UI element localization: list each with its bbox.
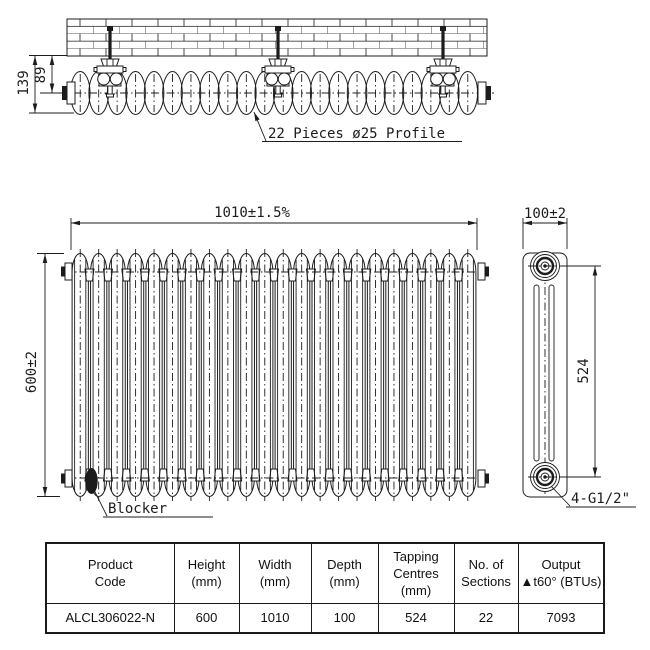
section-joint-bottom [270, 469, 279, 481]
section-joint-top [196, 269, 205, 281]
radiator-spec-sheet: 139 89 22 Pieces ø25 Profile 1010±1.5% 6… [0, 0, 650, 650]
connection-plug [61, 474, 65, 484]
section-joint-top [270, 269, 279, 281]
section-joint-bottom [140, 469, 149, 481]
bracket-foot-pad [275, 94, 282, 97]
section-joint-bottom [380, 469, 389, 481]
section-joint-bottom [122, 469, 131, 481]
section-joint-bottom [214, 469, 223, 481]
dimension-arrow [50, 56, 55, 65]
bracket-bar-tab [291, 68, 294, 72]
table-header-cell: Width(mm) [239, 543, 311, 603]
connection-plug [485, 267, 489, 277]
bracket-bar-tab [456, 68, 459, 72]
section-joint-top [306, 269, 315, 281]
specification-table: ProductCodeHeight(mm)Width(mm)Depth(mm)T… [45, 542, 605, 634]
bracket-foot-pad [440, 94, 447, 97]
table-header-cell: Depth(mm) [311, 543, 378, 603]
dim-height-label: 600±2 [24, 351, 40, 393]
bracket-pin-head [440, 26, 446, 31]
connection-plug [485, 474, 489, 484]
bracket-bar [265, 66, 291, 73]
dimension-arrow [468, 221, 477, 226]
dim-depth-label: 100±2 [524, 206, 566, 222]
dimension-arrow [71, 221, 80, 226]
table-row: ALCL306022-N6001010100524227093 [46, 603, 604, 633]
section-joint-bottom [196, 469, 205, 481]
section-joint-bottom [436, 469, 445, 481]
dim-139-label: 139 [16, 70, 32, 95]
bracket-bar-tab [262, 68, 265, 72]
section-joint-bottom [454, 469, 463, 481]
table-cell: 600 [174, 603, 239, 633]
dimension-arrow [593, 468, 598, 477]
section-joint-top [399, 269, 408, 281]
section-joint-bottom [159, 469, 168, 481]
end-cap [478, 82, 486, 104]
section-joint-bottom [343, 469, 352, 481]
end-cap-plug [62, 86, 67, 100]
blocker-plug [85, 468, 97, 494]
section-joint-bottom [233, 469, 242, 481]
table-header-cell: No. ofSections [454, 543, 518, 603]
section-joint-bottom [251, 469, 260, 481]
dimension-arrow [43, 254, 48, 263]
table-header-cell: ProductCode [46, 543, 174, 603]
dimension-arrow [43, 487, 48, 496]
section-joint-bottom [177, 469, 186, 481]
section-joint-top [417, 269, 426, 281]
section-joint-bottom [362, 469, 371, 481]
bracket-plate [434, 59, 452, 66]
section-joint-top [159, 269, 168, 281]
section-joint-bottom [399, 469, 408, 481]
bracket-roller [278, 73, 290, 85]
dimension-arrow [50, 84, 55, 93]
section-joint-bottom [288, 469, 297, 481]
bracket-bar-tab [427, 68, 430, 72]
bracket-bar [97, 66, 123, 73]
bracket-bar-tab [123, 68, 126, 72]
section-joint-top [103, 269, 112, 281]
dim-89-label: 89 [33, 67, 49, 84]
bracket-roller [431, 73, 443, 85]
dimension-arrow [593, 267, 598, 276]
blocker-label: Blocker [108, 501, 167, 517]
section-joint-bottom [103, 469, 112, 481]
connection-cap [478, 470, 485, 487]
table-header-cell: Height(mm) [174, 543, 239, 603]
end-cap [67, 82, 75, 104]
dim-tapping-label: 524 [576, 358, 592, 383]
section-joint-top [288, 269, 297, 281]
end-cap-plug [486, 86, 491, 100]
bracket-bar-tab [94, 68, 97, 72]
connection-cap [478, 263, 485, 280]
bracket-plate [101, 59, 119, 66]
connection-label: 4-G1/2" [571, 491, 630, 507]
table-header-cell: Output▲t60° (BTUs) [518, 543, 604, 603]
bracket-stem [108, 86, 112, 94]
table-cell: 524 [378, 603, 454, 633]
section-joint-top [343, 269, 352, 281]
profile-annotation: 22 Pieces ø25 Profile [268, 126, 445, 142]
bracket-foot-pad [107, 94, 114, 97]
bracket-pin-head [107, 26, 113, 31]
table-cell: 22 [454, 603, 518, 633]
section-joint-bottom [417, 469, 426, 481]
bracket-roller [110, 73, 122, 85]
table-cell: 7093 [518, 603, 604, 633]
bracket-roller [266, 73, 278, 85]
bracket-roller [443, 73, 455, 85]
section-joint-top [362, 269, 371, 281]
section-joint-bottom [325, 469, 334, 481]
leader-arrow [254, 112, 260, 121]
side-slot [549, 285, 554, 461]
section-joint-top [122, 269, 131, 281]
section-joint-top [380, 269, 389, 281]
dimension-arrow [33, 104, 38, 113]
bracket-stem [441, 86, 445, 94]
bracket-plate [269, 59, 287, 66]
section-joint-top [140, 269, 149, 281]
connection-plug [61, 267, 65, 277]
section-joint-top [325, 269, 334, 281]
drawing-geometry [29, 19, 636, 517]
dim-width-label: 1010±1.5% [214, 205, 290, 221]
section-joint-top [233, 269, 242, 281]
section-joint-top [436, 269, 445, 281]
connection-cap [65, 470, 72, 487]
section-joint-top [251, 269, 260, 281]
dimension-arrow [33, 56, 38, 65]
bracket-pin-head [275, 26, 281, 31]
table-cell: 1010 [239, 603, 311, 633]
table-cell: ALCL306022-N [46, 603, 174, 633]
connection-cap [65, 263, 72, 280]
table-header-row: ProductCodeHeight(mm)Width(mm)Depth(mm)T… [46, 543, 604, 603]
section-joint-top [214, 269, 223, 281]
technical-drawing: 139 89 22 Pieces ø25 Profile 1010±1.5% 6… [0, 0, 650, 540]
table-cell: 100 [311, 603, 378, 633]
bracket-bar [430, 66, 456, 73]
section-joint-top [177, 269, 186, 281]
section-joint-bottom [306, 469, 315, 481]
table-header-cell: TappingCentres(mm) [378, 543, 454, 603]
bracket-stem [276, 86, 280, 94]
bracket-roller [98, 73, 110, 85]
section-joint-top [454, 269, 463, 281]
side-slot [534, 285, 539, 461]
section-joint-top [85, 269, 94, 281]
